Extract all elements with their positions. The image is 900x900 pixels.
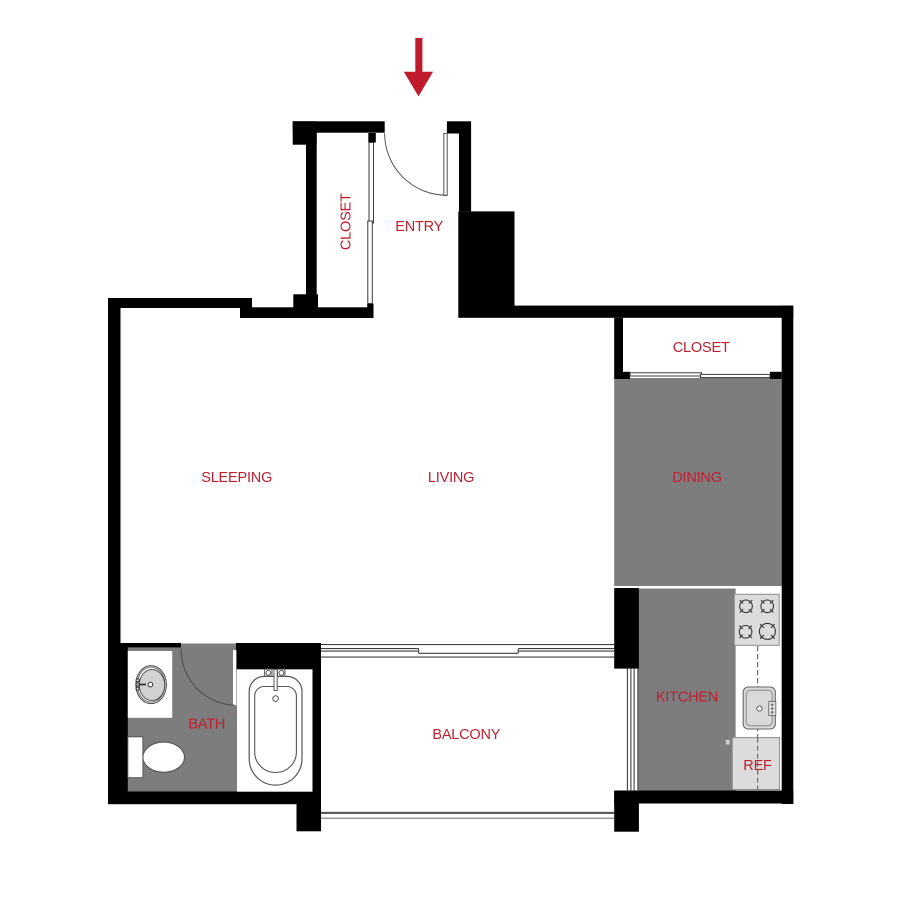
svg-text:KITCHEN: KITCHEN xyxy=(656,690,718,706)
svg-text:LIVING: LIVING xyxy=(428,470,474,486)
svg-text:SLEEPING: SLEEPING xyxy=(201,470,272,486)
svg-text:DINING: DINING xyxy=(672,470,722,486)
svg-text:CLOSET: CLOSET xyxy=(338,193,354,250)
svg-text:ENTRY: ENTRY xyxy=(395,219,443,235)
svg-text:BATH: BATH xyxy=(188,716,225,732)
svg-text:BALCONY: BALCONY xyxy=(432,727,500,743)
svg-text:REF: REF xyxy=(743,758,772,774)
svg-text:CLOSET: CLOSET xyxy=(673,340,730,356)
